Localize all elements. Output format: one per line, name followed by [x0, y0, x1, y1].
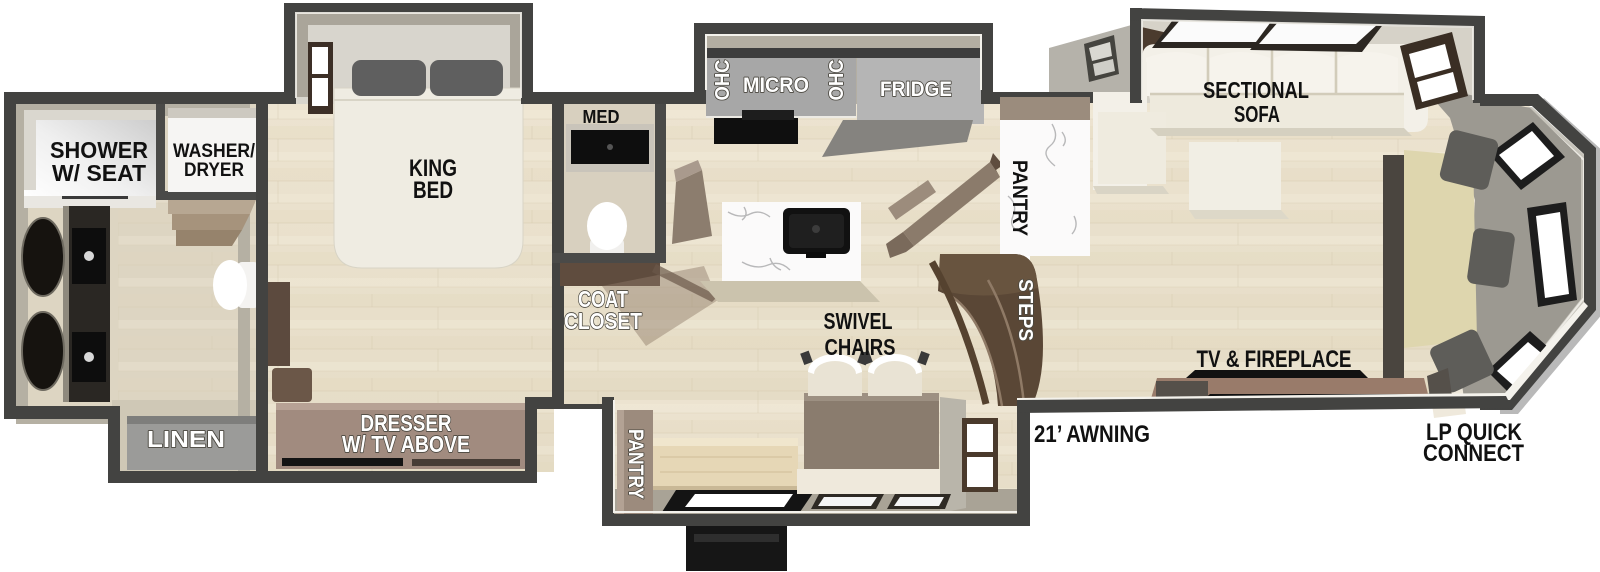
svg-text:MICRO: MICRO	[743, 74, 809, 97]
svg-text:SOFA: SOFA	[1234, 101, 1280, 127]
svg-text:SWIVEL: SWIVEL	[824, 308, 893, 334]
svg-text:CLOSET: CLOSET	[564, 308, 642, 334]
svg-text:W/ TV ABOVE: W/ TV ABOVE	[342, 431, 470, 457]
svg-text:CONNECT: CONNECT	[1423, 440, 1524, 467]
svg-text:21’ AWNING: 21’ AWNING	[1034, 421, 1150, 448]
svg-text:W/ SEAT: W/ SEAT	[52, 160, 146, 186]
svg-text:OHC: OHC	[826, 60, 848, 101]
svg-text:WASHER/: WASHER/	[173, 141, 256, 162]
svg-text:PANTRY: PANTRY	[1008, 160, 1031, 236]
svg-text:OHC: OHC	[712, 60, 734, 101]
svg-text:TV & FIREPLACE: TV & FIREPLACE	[1197, 346, 1352, 373]
svg-text:DRYER: DRYER	[184, 160, 244, 181]
svg-text:SECTIONAL: SECTIONAL	[1203, 77, 1309, 103]
svg-text:CHAIRS: CHAIRS	[825, 334, 896, 360]
svg-text:BED: BED	[413, 177, 453, 204]
svg-text:STEPS: STEPS	[1014, 279, 1036, 341]
svg-text:LINEN: LINEN	[147, 426, 225, 452]
svg-text:PANTRY: PANTRY	[624, 429, 647, 499]
svg-text:MED: MED	[583, 107, 620, 127]
svg-text:FRIDGE: FRIDGE	[880, 78, 952, 101]
